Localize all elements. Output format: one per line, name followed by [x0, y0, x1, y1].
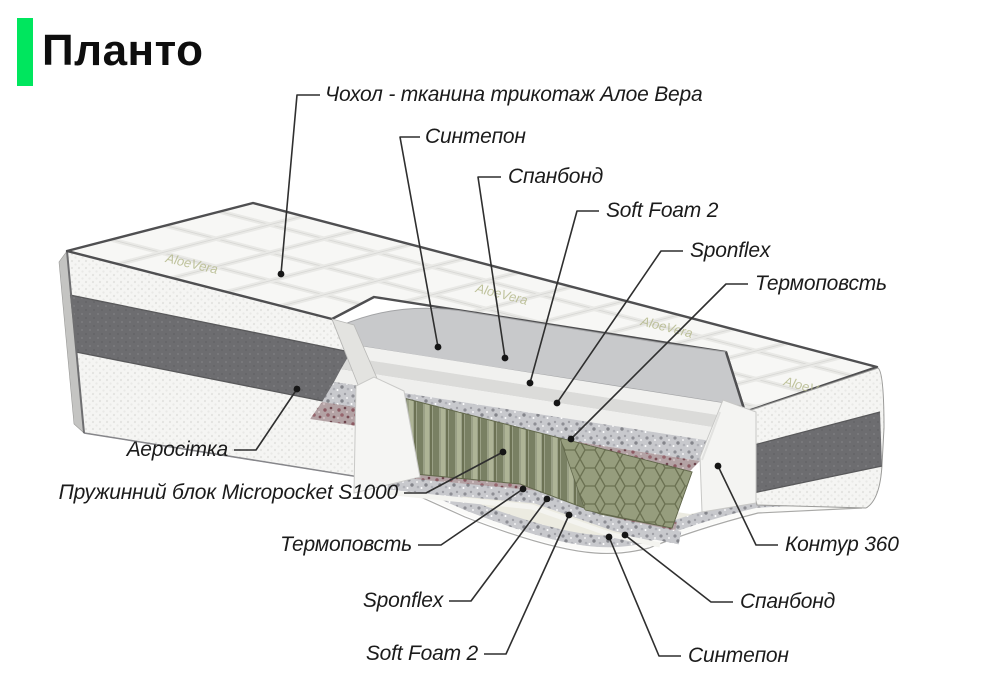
leader-line-sintepon-bottom	[609, 537, 681, 656]
leader-dot-aerositka	[294, 386, 301, 393]
leader-dot-sintepon-top	[435, 344, 442, 351]
leader-dot-termofelt-bottom	[520, 486, 527, 493]
leader-dot-soft-foam-bottom	[566, 512, 573, 519]
leader-dot-kontur-360	[715, 463, 722, 470]
leader-dot-sintepon-bottom	[606, 534, 613, 541]
page-title: Планто	[42, 26, 203, 76]
leader-dot-soft-foam-top	[527, 380, 534, 387]
leader-dot-spanbond-top	[502, 355, 509, 362]
leader-dot-sponflex-top	[554, 400, 561, 407]
leader-dot-sponflex-bottom	[544, 496, 551, 503]
leader-dot-spanbond-bottom	[622, 532, 629, 539]
title-accent-bar	[17, 18, 33, 86]
leader-dot-spring-block	[500, 449, 507, 456]
mattress-diagram: AloeVera AloeVera AloeVera AloeVera	[0, 0, 983, 700]
leader-dot-cover	[278, 271, 285, 278]
mattress-illustration: AloeVera AloeVera AloeVera AloeVera	[59, 203, 884, 553]
leader-dot-termofelt-top	[568, 436, 575, 443]
